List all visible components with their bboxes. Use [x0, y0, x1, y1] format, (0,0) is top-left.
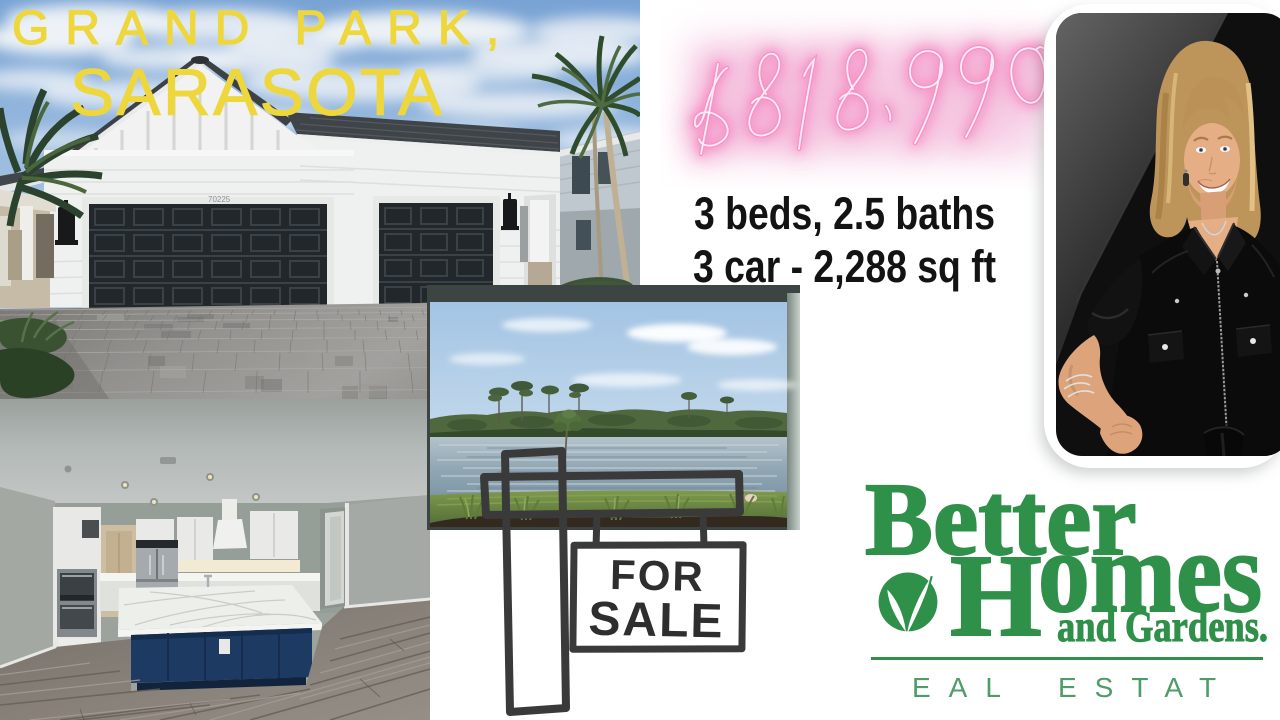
svg-text:SALE: SALE	[588, 593, 725, 649]
svg-text:70225: 70225	[208, 195, 231, 204]
